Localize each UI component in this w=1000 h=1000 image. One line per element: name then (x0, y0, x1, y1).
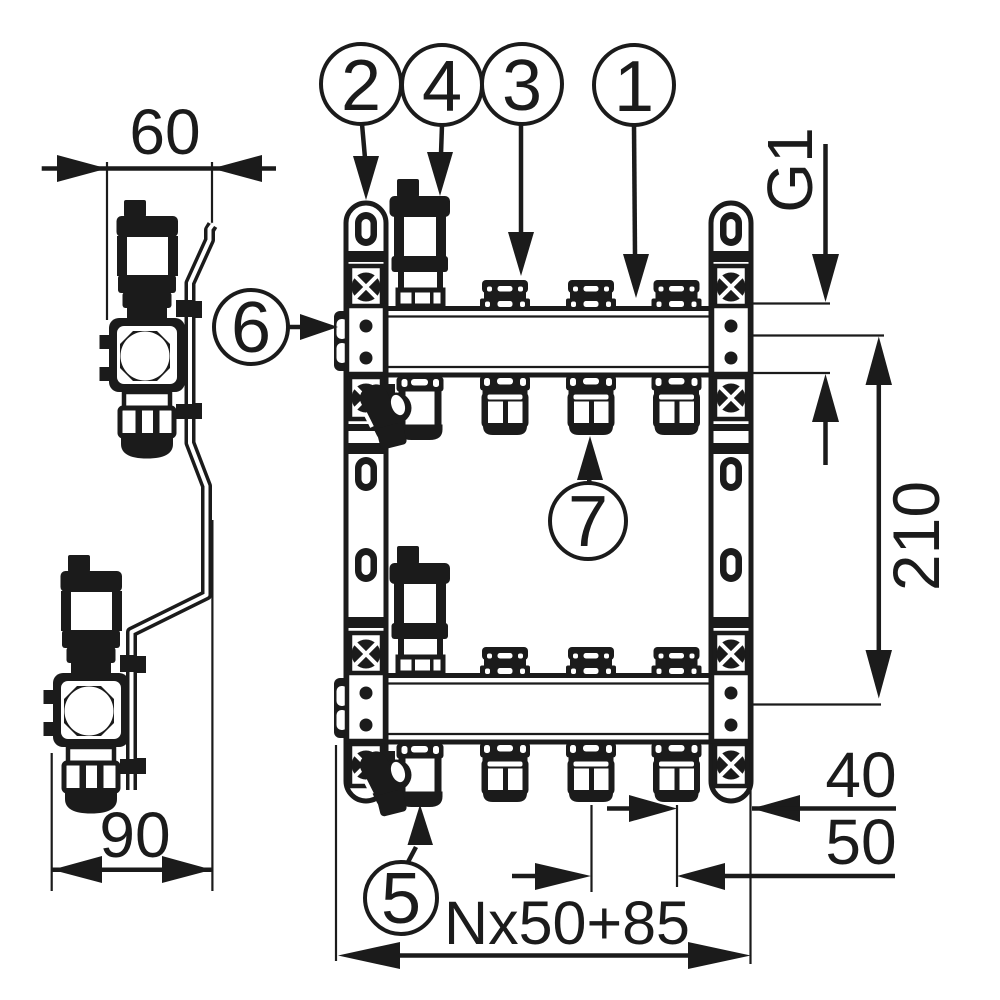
svg-text:4: 4 (422, 47, 462, 127)
svg-text:6: 6 (231, 288, 271, 368)
svg-text:5: 5 (381, 859, 421, 939)
svg-text:210: 210 (879, 481, 953, 591)
svg-text:60: 60 (129, 96, 200, 168)
svg-text:1: 1 (614, 47, 654, 127)
svg-text:2: 2 (341, 46, 381, 126)
svg-text:3: 3 (502, 46, 542, 126)
svg-text:Nx50+85: Nx50+85 (444, 889, 690, 957)
svg-text:G1: G1 (754, 127, 826, 212)
svg-text:7: 7 (568, 482, 608, 562)
svg-text:50: 50 (825, 806, 896, 878)
svg-text:40: 40 (825, 739, 896, 811)
svg-text:90: 90 (99, 799, 170, 871)
